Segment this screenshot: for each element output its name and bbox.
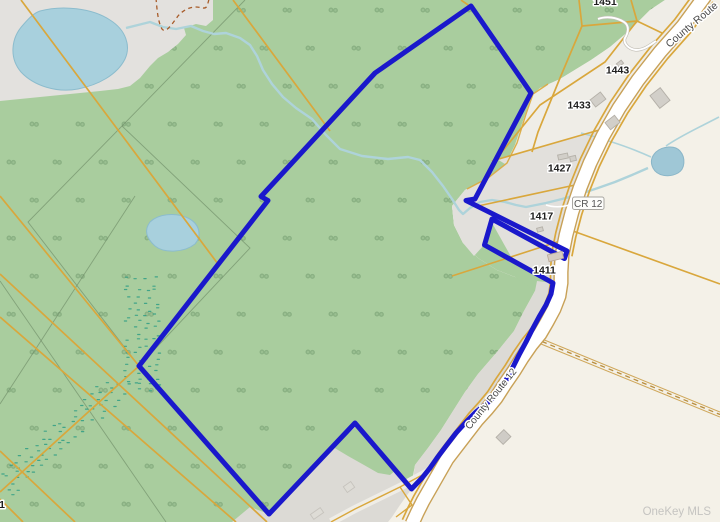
svg-text:1427: 1427	[548, 163, 572, 175]
svg-text:1451: 1451	[593, 0, 617, 8]
svg-text:1433: 1433	[567, 100, 591, 112]
svg-text:OneKey MLS: OneKey MLS	[643, 506, 712, 518]
svg-text:1443: 1443	[606, 65, 630, 77]
svg-text:1: 1	[0, 499, 5, 511]
svg-text:CR 12: CR 12	[574, 199, 603, 210]
svg-text:1417: 1417	[530, 211, 554, 223]
svg-text:1411: 1411	[533, 265, 556, 277]
